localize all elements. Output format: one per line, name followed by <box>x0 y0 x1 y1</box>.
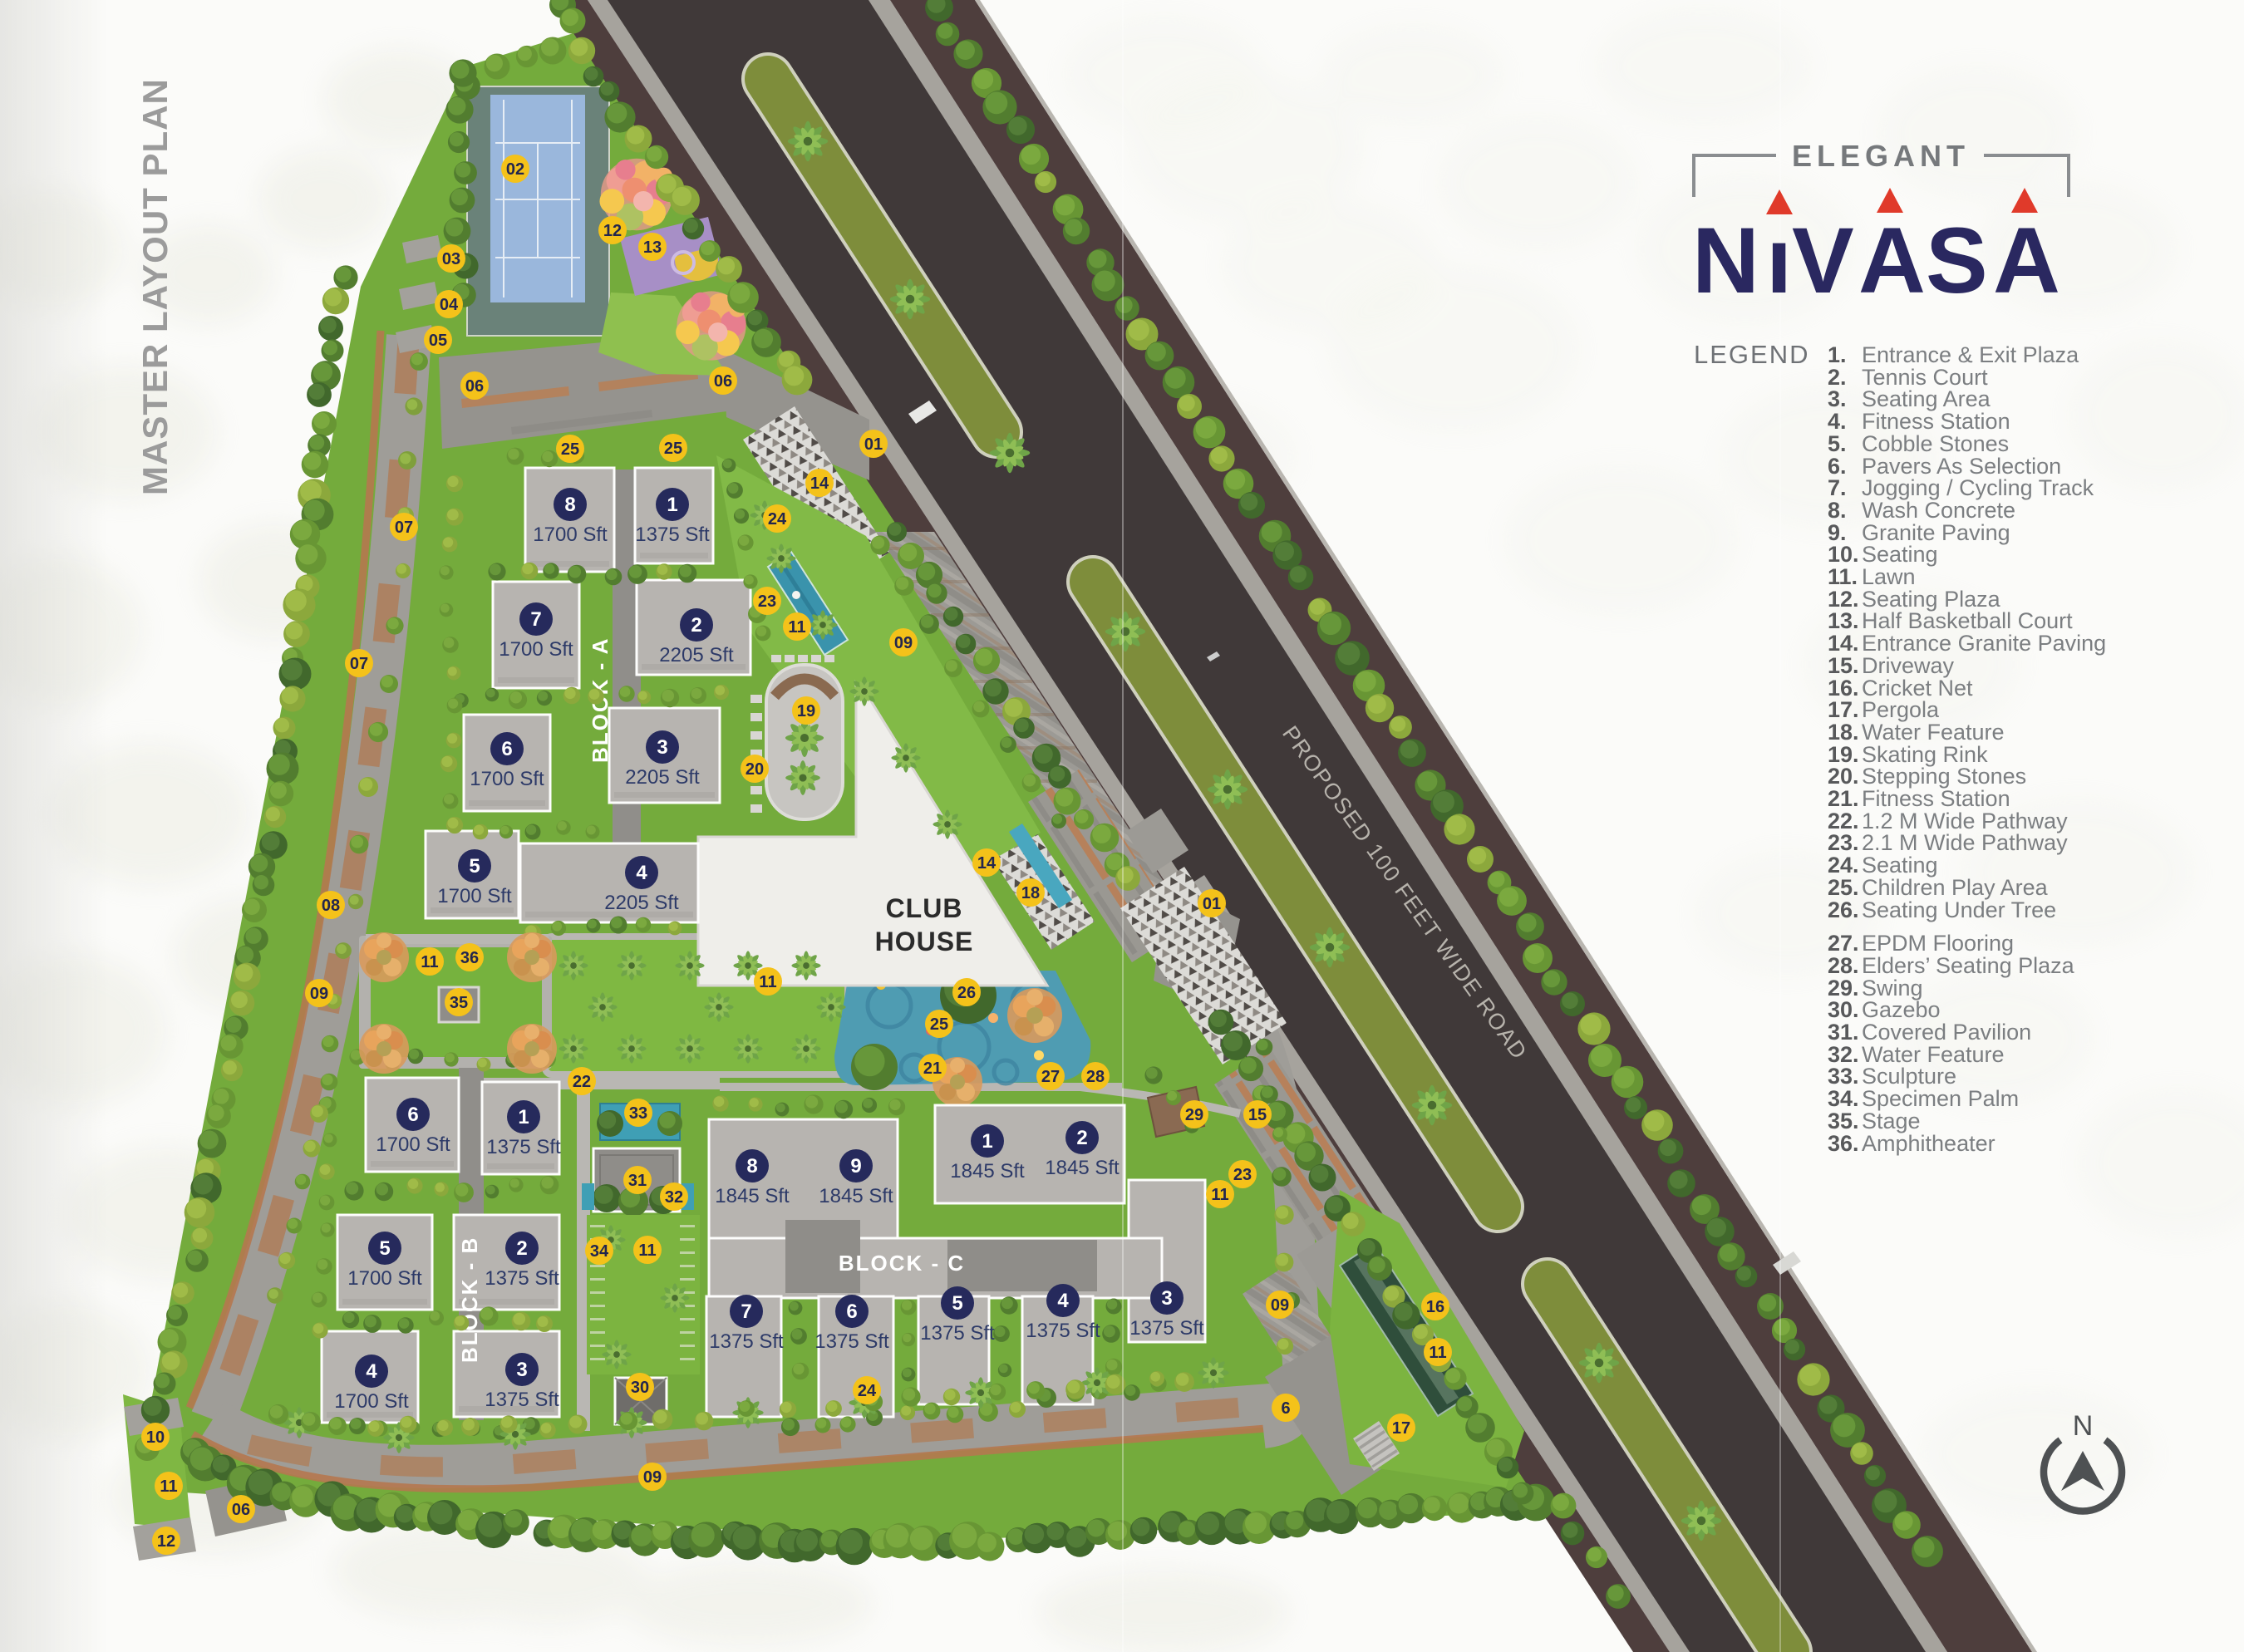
svg-text:ı: ı <box>1766 209 1792 312</box>
svg-text:N: N <box>1692 209 1759 312</box>
svg-text:Entrance & Exit Plaza: Entrance & Exit Plaza <box>1862 342 2079 367</box>
svg-text:3: 3 <box>1161 1287 1172 1310</box>
svg-text:7: 7 <box>530 608 541 631</box>
svg-text:2205 Sft: 2205 Sft <box>659 644 734 666</box>
svg-text:1700 Sft: 1700 Sft <box>533 524 608 546</box>
svg-text:09: 09 <box>894 634 913 652</box>
svg-text:Sculpture: Sculpture <box>1862 1064 1956 1089</box>
svg-text:24: 24 <box>768 510 787 529</box>
svg-text:1700 Sft: 1700 Sft <box>376 1133 450 1156</box>
svg-text:1375 Sft: 1375 Sft <box>1026 1320 1100 1342</box>
svg-text:6: 6 <box>407 1104 418 1126</box>
svg-text:1375 Sft: 1375 Sft <box>920 1322 995 1345</box>
svg-text:16: 16 <box>1426 1298 1444 1316</box>
svg-text:1375 Sft: 1375 Sft <box>814 1330 889 1353</box>
svg-text:Seating Under Tree: Seating Under Tree <box>1862 897 2056 922</box>
svg-text:29: 29 <box>1185 1106 1203 1124</box>
svg-text:Seating: Seating <box>1862 542 1938 567</box>
svg-text:7: 7 <box>741 1300 751 1323</box>
svg-text:HOUSE: HOUSE <box>875 927 974 956</box>
svg-text:N: N <box>2073 1410 2094 1442</box>
svg-text:27: 27 <box>1041 1068 1060 1086</box>
svg-text:11: 11 <box>1429 1344 1446 1362</box>
svg-text:21: 21 <box>923 1060 942 1078</box>
svg-text:1: 1 <box>667 494 677 516</box>
svg-text:21.: 21. <box>1828 786 1859 811</box>
svg-text:6: 6 <box>846 1300 857 1323</box>
svg-text:6: 6 <box>501 738 512 760</box>
svg-text:32: 32 <box>665 1188 683 1207</box>
svg-text:30: 30 <box>631 1379 649 1397</box>
svg-text:06: 06 <box>465 377 484 396</box>
svg-text:15.: 15. <box>1828 653 1859 678</box>
svg-text:27.: 27. <box>1828 931 1859 956</box>
svg-text:Entrance Granite Paving: Entrance Granite Paving <box>1862 631 2106 656</box>
svg-text:4.: 4. <box>1828 409 1847 434</box>
svg-text:25: 25 <box>664 440 682 458</box>
svg-text:Driveway: Driveway <box>1862 653 1955 678</box>
svg-text:2.1 M Wide Pathway: 2.1 M Wide Pathway <box>1862 830 2068 855</box>
svg-text:12: 12 <box>157 1532 175 1551</box>
svg-text:1375 Sft: 1375 Sft <box>1129 1317 1204 1340</box>
svg-text:2: 2 <box>1076 1127 1087 1149</box>
svg-text:28.: 28. <box>1828 953 1859 978</box>
svg-text:24: 24 <box>858 1382 877 1400</box>
svg-text:ELEGANT: ELEGANT <box>1792 139 1970 173</box>
svg-text:22: 22 <box>573 1073 591 1091</box>
svg-text:36.: 36. <box>1828 1131 1859 1156</box>
svg-text:35.: 35. <box>1828 1109 1859 1133</box>
svg-text:3: 3 <box>657 736 667 759</box>
svg-text:12: 12 <box>603 222 622 240</box>
svg-text:13: 13 <box>643 238 662 257</box>
svg-text:14: 14 <box>810 474 829 493</box>
svg-text:06: 06 <box>714 372 732 391</box>
svg-text:03: 03 <box>442 250 460 268</box>
svg-text:1845 Sft: 1845 Sft <box>715 1185 790 1207</box>
svg-text:1375 Sft: 1375 Sft <box>709 1330 784 1353</box>
svg-text:1: 1 <box>982 1130 992 1153</box>
svg-text:6: 6 <box>1281 1399 1290 1418</box>
svg-text:17: 17 <box>1392 1419 1410 1438</box>
svg-text:4: 4 <box>366 1360 377 1383</box>
svg-text:MASTER LAYOUT PLAN: MASTER LAYOUT PLAN <box>135 78 175 495</box>
svg-text:Water Feature: Water Feature <box>1862 720 2005 745</box>
svg-text:8.: 8. <box>1828 498 1847 523</box>
svg-text:1700 Sft: 1700 Sft <box>334 1390 409 1413</box>
svg-text:02: 02 <box>506 160 524 179</box>
svg-text:Fitness Station: Fitness Station <box>1862 786 2010 811</box>
svg-text:EPDM Flooring: EPDM Flooring <box>1862 931 2014 956</box>
svg-text:Pergola: Pergola <box>1862 697 1940 722</box>
svg-text:5: 5 <box>952 1292 962 1315</box>
svg-text:2205 Sft: 2205 Sft <box>604 892 679 914</box>
svg-text:1375 Sft: 1375 Sft <box>485 1267 559 1290</box>
svg-text:04: 04 <box>440 296 459 314</box>
svg-text:35: 35 <box>450 994 468 1012</box>
svg-text:09: 09 <box>1271 1296 1289 1315</box>
svg-text:1700 Sft: 1700 Sft <box>437 885 512 907</box>
svg-text:Stepping Stones: Stepping Stones <box>1862 764 2026 789</box>
svg-text:23: 23 <box>1233 1166 1252 1184</box>
svg-text:34: 34 <box>590 1242 609 1261</box>
svg-text:11: 11 <box>788 618 805 637</box>
svg-text:Seating Area: Seating Area <box>1862 386 1991 411</box>
svg-text:23.: 23. <box>1828 830 1859 855</box>
svg-text:34.: 34. <box>1828 1086 1859 1111</box>
svg-text:Fitness Station: Fitness Station <box>1862 409 2010 434</box>
svg-text:Jogging / Cycling Track: Jogging / Cycling Track <box>1862 475 2094 500</box>
svg-text:05: 05 <box>429 332 447 350</box>
svg-text:Cobble Stones: Cobble Stones <box>1862 431 2009 456</box>
svg-text:36: 36 <box>460 949 479 967</box>
svg-text:13.: 13. <box>1828 608 1859 633</box>
svg-text:26: 26 <box>957 984 976 1002</box>
svg-text:26.: 26. <box>1828 897 1859 922</box>
svg-text:09: 09 <box>310 985 328 1003</box>
svg-text:4: 4 <box>1057 1290 1069 1312</box>
svg-text:25.: 25. <box>1828 875 1859 900</box>
svg-text:3: 3 <box>516 1359 527 1381</box>
svg-text:15: 15 <box>1248 1106 1267 1124</box>
svg-text:01: 01 <box>864 435 883 454</box>
svg-text:08: 08 <box>322 897 340 915</box>
svg-text:23: 23 <box>758 592 776 611</box>
svg-text:8: 8 <box>746 1155 757 1178</box>
svg-text:5: 5 <box>469 855 480 878</box>
svg-text:4: 4 <box>636 862 647 884</box>
svg-text:01: 01 <box>1203 895 1221 913</box>
svg-text:1845 Sft: 1845 Sft <box>1045 1157 1120 1179</box>
svg-text:Lawn: Lawn <box>1862 564 1916 589</box>
svg-text:11: 11 <box>638 1241 656 1260</box>
svg-text:14.: 14. <box>1828 631 1859 656</box>
svg-text:Covered Pavilion: Covered Pavilion <box>1862 1020 2031 1045</box>
svg-text:Wash Concrete: Wash Concrete <box>1862 498 2015 523</box>
svg-text:7.: 7. <box>1828 475 1847 500</box>
svg-text:Gazebo: Gazebo <box>1862 997 1941 1022</box>
svg-text:20: 20 <box>746 760 764 779</box>
svg-text:28: 28 <box>1086 1068 1105 1086</box>
svg-text:14: 14 <box>977 854 997 873</box>
svg-text:1375 Sft: 1375 Sft <box>486 1136 561 1158</box>
svg-text:06: 06 <box>232 1501 250 1519</box>
svg-text:CLUB: CLUB <box>886 893 963 923</box>
svg-text:31.: 31. <box>1828 1020 1859 1045</box>
svg-text:11: 11 <box>160 1477 177 1496</box>
svg-text:24.: 24. <box>1828 853 1859 878</box>
svg-text:BLOCK - C: BLOCK - C <box>839 1251 965 1276</box>
svg-text:19: 19 <box>797 702 815 720</box>
svg-text:11.: 11. <box>1828 564 1858 589</box>
svg-text:30.: 30. <box>1828 997 1859 1022</box>
svg-text:Children Play Area: Children Play Area <box>1862 875 2049 900</box>
svg-text:9: 9 <box>850 1155 861 1178</box>
svg-text:1.: 1. <box>1828 342 1847 367</box>
svg-text:3.: 3. <box>1828 386 1847 411</box>
svg-text:11: 11 <box>421 953 438 971</box>
svg-text:09: 09 <box>643 1468 662 1487</box>
svg-text:Specimen Palm: Specimen Palm <box>1862 1086 2019 1111</box>
svg-text:A: A <box>1858 209 1926 312</box>
svg-text:1700 Sft: 1700 Sft <box>470 768 544 790</box>
svg-text:18: 18 <box>1021 884 1040 902</box>
svg-text:1375 Sft: 1375 Sft <box>635 524 710 546</box>
svg-text:11: 11 <box>1211 1186 1228 1204</box>
svg-text:1700 Sft: 1700 Sft <box>347 1267 422 1290</box>
svg-text:25: 25 <box>561 440 579 459</box>
svg-text:11: 11 <box>759 973 776 991</box>
svg-text:1845 Sft: 1845 Sft <box>819 1185 893 1207</box>
svg-text:A: A <box>1993 209 2060 312</box>
svg-text:Seating: Seating <box>1862 853 1938 878</box>
svg-text:2205 Sft: 2205 Sft <box>625 766 700 789</box>
svg-text:33: 33 <box>629 1104 647 1123</box>
svg-text:Elders’ Seating Plaza: Elders’ Seating Plaza <box>1862 953 2075 978</box>
svg-text:1375 Sft: 1375 Sft <box>485 1389 559 1411</box>
svg-text:20.: 20. <box>1828 764 1859 789</box>
svg-text:31: 31 <box>628 1172 647 1190</box>
svg-text:1700 Sft: 1700 Sft <box>499 638 573 661</box>
svg-text:33.: 33. <box>1828 1064 1859 1089</box>
svg-text:BLOCK - B: BLOCK - B <box>457 1237 482 1363</box>
svg-text:07: 07 <box>350 655 368 673</box>
svg-text:2: 2 <box>691 614 701 637</box>
svg-text:25: 25 <box>930 1015 948 1034</box>
svg-text:5: 5 <box>379 1237 390 1260</box>
svg-text:18.: 18. <box>1828 720 1859 745</box>
svg-text:1: 1 <box>518 1106 529 1128</box>
svg-text:07: 07 <box>395 519 413 537</box>
svg-text:LEGEND: LEGEND <box>1694 340 1809 369</box>
svg-text:5.: 5. <box>1828 431 1847 456</box>
svg-text:8: 8 <box>564 494 575 516</box>
svg-text:Half Basketball Court: Half Basketball Court <box>1862 608 2073 633</box>
svg-text:V: V <box>1792 209 1854 312</box>
svg-text:Amphitheater: Amphitheater <box>1862 1131 1995 1156</box>
svg-text:10: 10 <box>146 1428 165 1447</box>
svg-text:10.: 10. <box>1828 542 1859 567</box>
svg-text:Stage: Stage <box>1862 1109 1921 1133</box>
svg-text:1845 Sft: 1845 Sft <box>950 1160 1025 1182</box>
svg-text:S: S <box>1926 209 1988 312</box>
svg-text:2: 2 <box>516 1237 527 1260</box>
svg-text:17.: 17. <box>1828 697 1859 722</box>
